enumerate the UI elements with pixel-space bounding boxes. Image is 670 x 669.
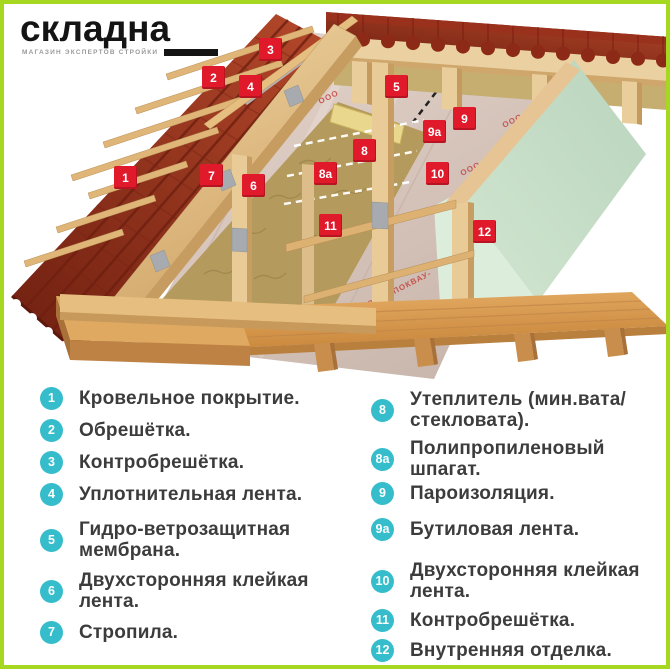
legend-label-8a: Полипропиленовый шпагат.	[410, 438, 652, 480]
legend-badge-9: 9	[371, 482, 394, 505]
legend-label-7: Стропила.	[79, 622, 321, 643]
legend-label-12: Внутренняя отделка.	[410, 640, 652, 661]
legend-item-5: 5 Гидро-ветрозащитная мембрана.	[40, 519, 321, 561]
marker-6: 6	[242, 174, 265, 197]
marker-2: 2	[202, 66, 225, 89]
legend-badge-5: 5	[40, 529, 63, 552]
legend-label-8: Утеплитель (мин.вата/​стекловата).	[410, 389, 652, 431]
legend-label-2: Обрешётка.	[79, 420, 321, 441]
legend-item-11: 11 Контробрешётка.	[371, 609, 652, 632]
legend-badge-9a: 9а	[371, 518, 394, 541]
legend-label-5: Гидро-ветрозащитная мембрана.	[79, 519, 321, 561]
marker-12: 12	[473, 220, 496, 243]
legend-item-6: 6 Двухсторонняя клейкая лента.	[40, 570, 321, 612]
legend-label-6: Двухсторонняя клейкая лента.	[79, 570, 321, 612]
legend-label-4: Уплотнительная лента.	[79, 484, 321, 505]
legend-badge-2: 2	[40, 419, 63, 442]
brand-bar	[164, 49, 218, 56]
legend-item-4: 4 Уплотнительная лента.	[40, 483, 321, 506]
legend-badge-10: 10	[371, 570, 394, 593]
brand-name: складна	[20, 10, 218, 47]
legend-item-10: 10 Двухсторонняя клейкая лента.	[371, 560, 652, 602]
marker-1: 1	[114, 166, 137, 189]
marker-5: 5	[385, 75, 408, 98]
marker-8: 8	[353, 139, 376, 162]
marker-8a: 8а	[314, 162, 337, 185]
marker-9: 9	[453, 107, 476, 130]
marker-4: 4	[239, 75, 262, 98]
brand-tagline: МАГАЗИН ЭКСПЕРТОВ СТРОЙКИ	[22, 49, 158, 56]
roof-cutaway-illustration: ООО -ПОКВАУ- ООО -ПОКВАУ- ООО -ПОКВАУ- О…	[4, 4, 670, 379]
legend-label-3: Контробрешётка.	[79, 452, 321, 473]
page: складна МАГАЗИН ЭКСПЕРТОВ СТРОЙКИ	[0, 0, 670, 669]
legend-item-9: 9 Пароизоляция.	[371, 482, 652, 505]
legend-label-1: Кровельное покрытие.	[79, 388, 321, 409]
legend-badge-4: 4	[40, 483, 63, 506]
legend-label-10: Двухсторонняя клейкая лента.	[410, 560, 652, 602]
marker-7: 7	[200, 164, 223, 187]
marker-3: 3	[259, 38, 282, 61]
legend-badge-3: 3	[40, 451, 63, 474]
legend-badge-8a: 8а	[371, 448, 394, 471]
legend-badge-7: 7	[40, 621, 63, 644]
legend-label-9a: Бутиловая лента.	[410, 519, 652, 540]
legend-badge-11: 11	[371, 609, 394, 632]
legend-item-9a: 9а Бутиловая лента.	[371, 518, 652, 541]
legend-label-11: Контробрешётка.	[410, 610, 652, 631]
legend-item-7: 7 Стропила.	[40, 621, 321, 644]
legend-item-8: 8 Утеплитель (мин.вата/​стекловата).	[371, 389, 652, 431]
legend-badge-8: 8	[371, 399, 394, 422]
marker-9a: 9а	[423, 120, 446, 143]
legend-badge-6: 6	[40, 580, 63, 603]
legend-badge-1: 1	[40, 387, 63, 410]
marker-11: 11	[319, 214, 342, 237]
legend-badge-12: 12	[371, 639, 394, 662]
brand-logo: складна МАГАЗИН ЭКСПЕРТОВ СТРОЙКИ	[20, 10, 218, 56]
legend-item-2: 2 Обрешётка.	[40, 419, 321, 442]
legend-item-1: 1 Кровельное покрытие.	[40, 387, 321, 410]
legend-item-8a: 8а Полипропиленовый шпагат.	[371, 438, 652, 480]
marker-10: 10	[426, 162, 449, 185]
legend-item-12: 12 Внутренняя отделка.	[371, 639, 652, 662]
legend-label-9: Пароизоляция.	[410, 483, 652, 504]
legend-item-3: 3 Контробрешётка.	[40, 451, 321, 474]
